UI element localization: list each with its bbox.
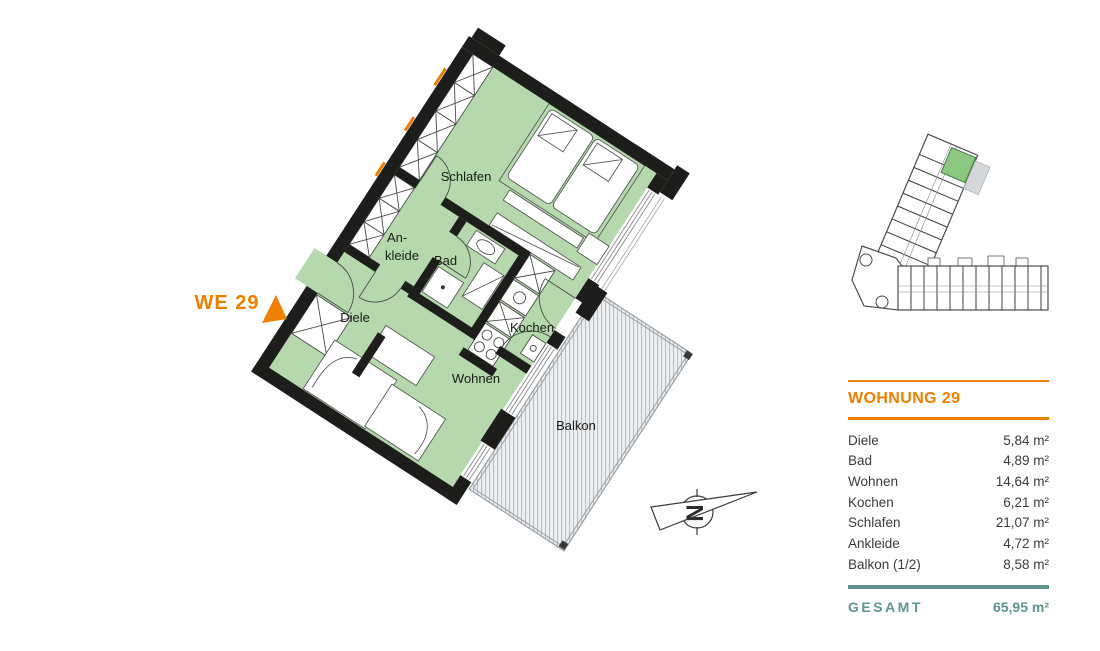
room-label-wohnen: Wohnen [452,371,500,386]
unit-callout-arrow-icon [262,295,287,323]
site-plan-thumbnail [852,134,1048,310]
area-rows: Diele 5,84 m² Bad 4,89 m² Wohnen 14,64 m… [848,433,1049,578]
row-value: 14,64 m² [996,474,1049,489]
area-row: Balkon (1/2) 8,58 m² [848,557,1049,578]
row-value: 4,89 m² [1003,453,1049,468]
room-label-diele: Diele [340,310,370,325]
row-value: 4,72 m² [1003,536,1049,551]
row-value: 5,84 m² [1003,433,1049,448]
row-label: Ankleide [848,536,900,551]
area-row: Ankleide 4,72 m² [848,536,1049,557]
area-table-panel: WOHNUNG 29 Diele 5,84 m² Bad 4,89 m² Woh… [848,380,1049,615]
room-label-schlafen: Schlafen [441,169,492,184]
row-label: Bad [848,453,872,468]
area-row: Wohnen 14,64 m² [848,474,1049,495]
row-value: 6,21 m² [1003,495,1049,510]
row-label: Kochen [848,495,894,510]
apartment-plan [239,18,778,568]
unit-callout: WE 29 [194,292,287,323]
unit-callout-label: WE 29 [194,292,259,314]
room-label-balkon: Balkon [556,418,596,433]
area-row: Schlafen 21,07 m² [848,515,1049,536]
panel-total-rule [848,585,1049,589]
panel-title-rule [848,417,1049,420]
north-compass: N [651,489,757,535]
row-value: 21,07 m² [996,515,1049,530]
row-label: Balkon (1/2) [848,557,921,572]
row-label: Diele [848,433,879,448]
area-row: Diele 5,84 m² [848,433,1049,454]
compass-north-letter: N [681,504,708,521]
panel-title: WOHNUNG 29 [848,382,1049,417]
row-value: 8,58 m² [1003,557,1049,572]
room-label-ankleide-line1: An- [387,230,407,245]
room-label-kochen: Kochen [510,320,554,335]
total-value: 65,95 m² [993,599,1049,615]
room-label-bad: Bad [434,253,457,268]
room-label-ankleide-line2: kleide [385,248,419,263]
total-row: GESAMT 65,95 m² [848,599,1049,615]
area-row: Kochen 6,21 m² [848,495,1049,516]
total-label: GESAMT [848,599,923,615]
row-label: Schlafen [848,515,901,530]
row-label: Wohnen [848,474,898,489]
area-row: Bad 4,89 m² [848,453,1049,474]
